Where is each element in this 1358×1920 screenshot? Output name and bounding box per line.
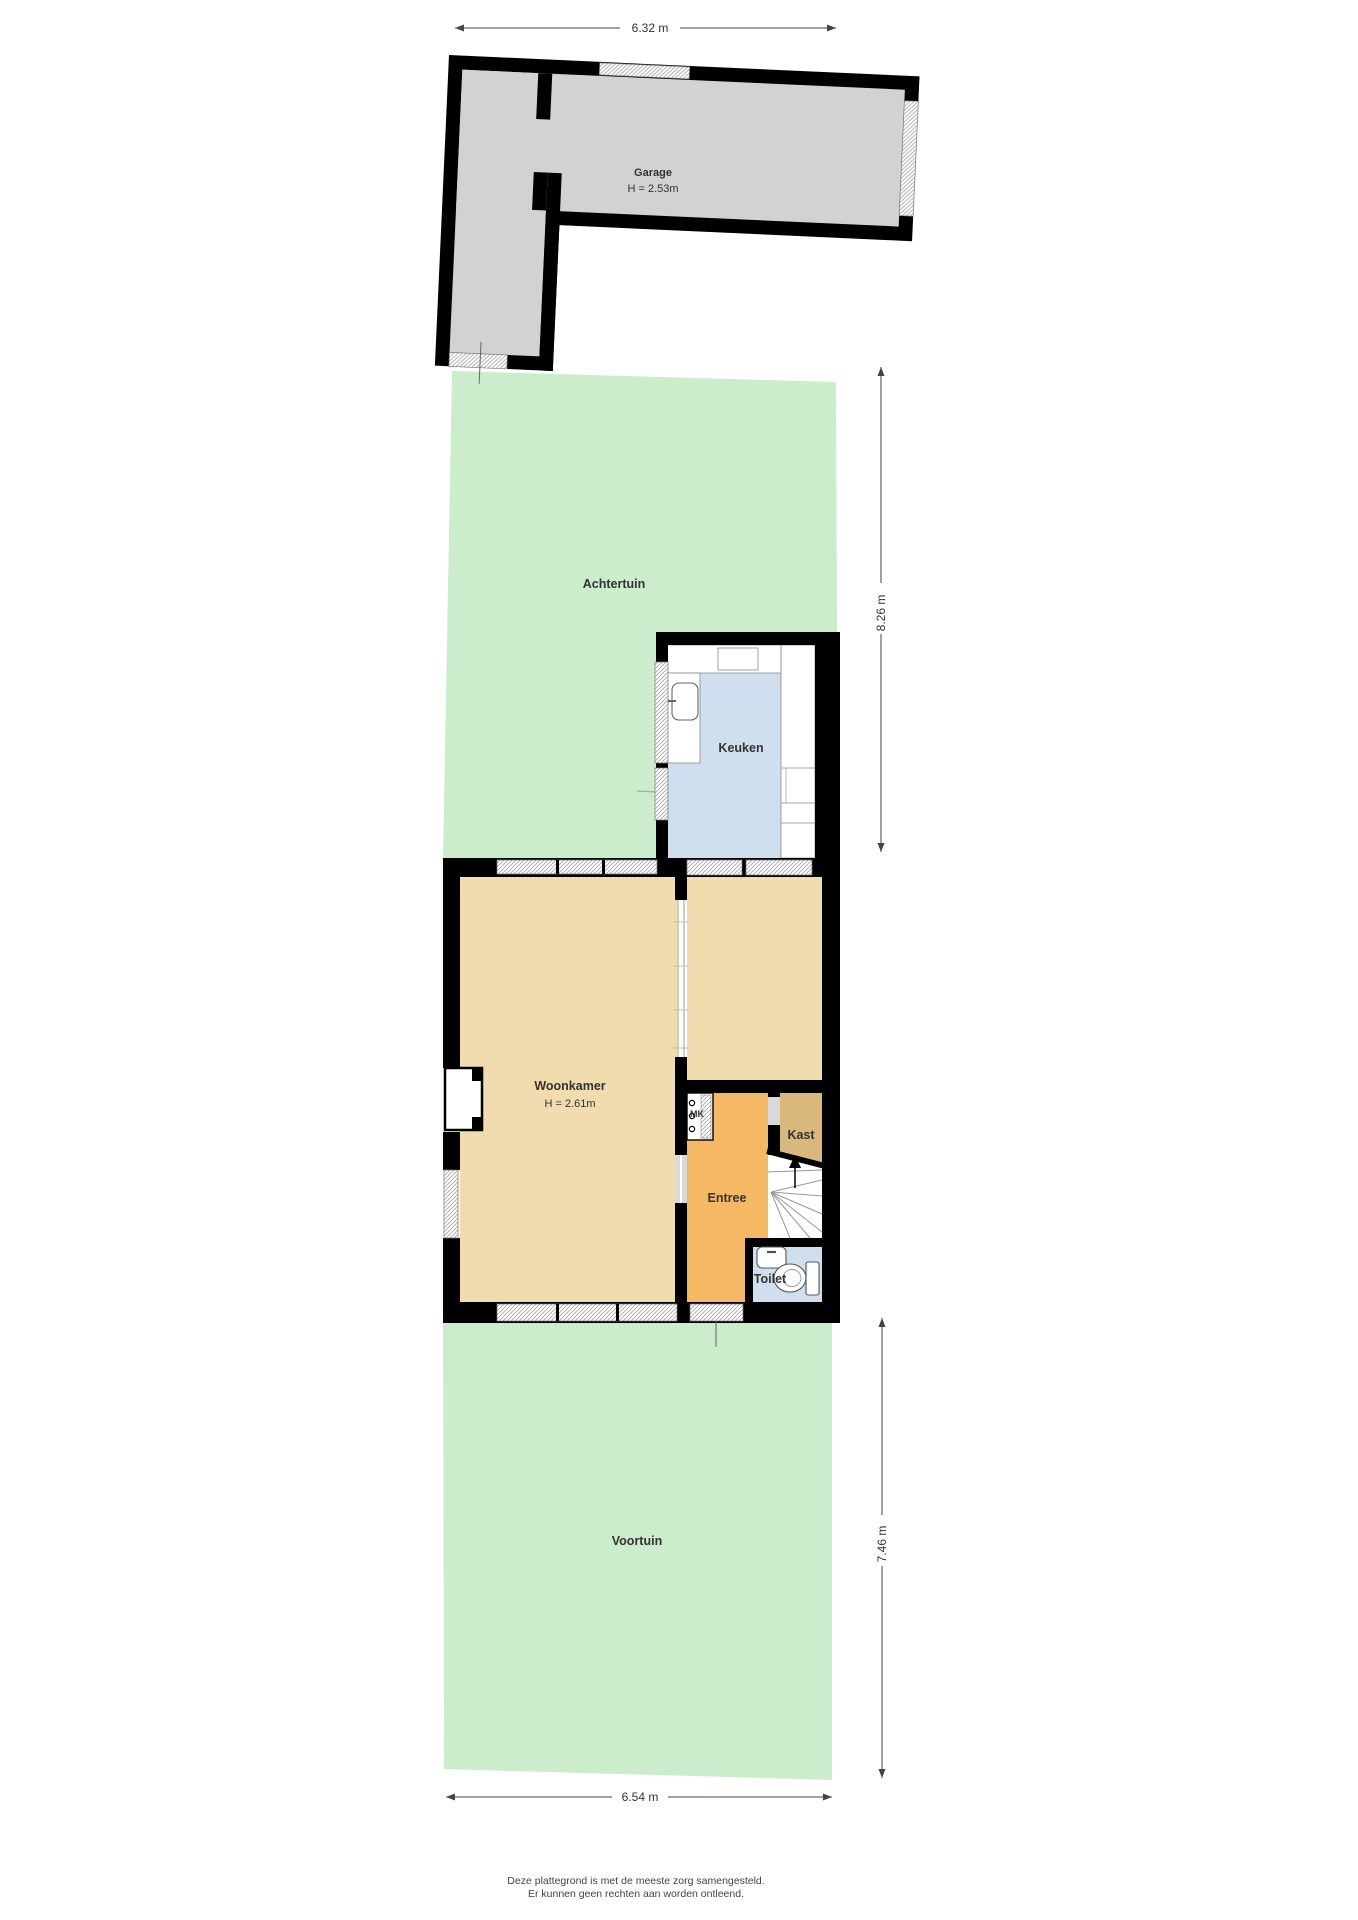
dimension-bottom: 6.54 m [446, 1790, 832, 1804]
dimension-right-upper-label: 8.26 m [874, 595, 888, 632]
achterkamer-floor [687, 877, 822, 1080]
dimension-right-upper: 8.26 m [874, 367, 888, 852]
mk-label: MK [690, 1109, 704, 1119]
dimension-right-lower: 7.46 m [875, 1318, 889, 1778]
keuken-door [746, 860, 812, 875]
voortuin-label: Voortuin [612, 1534, 662, 1548]
garage-height-label: H = 2.53m [627, 183, 678, 195]
entree-label: Entree [708, 1191, 747, 1205]
keuken-window-1 [655, 662, 668, 763]
kast-label: Kast [787, 1128, 815, 1142]
footer-disclaimer: Deze plattegrond is met de meeste zorg s… [507, 1875, 764, 1900]
toilet-label: Toilet [754, 1272, 787, 1286]
woonkamer-side-window [444, 1170, 458, 1238]
keuken-window-2 [655, 768, 668, 820]
keuken-label: Keuken [718, 741, 763, 755]
dimension-right-lower-label: 7.46 m [875, 1526, 889, 1563]
footer-line-2: Er kunnen geen rechten aan worden ontlee… [528, 1888, 744, 1900]
floorplan-drawing: Garage H = 2.53m [0, 0, 1358, 1920]
keuken-serving-window [687, 860, 742, 875]
voortuin-area [443, 1321, 832, 1780]
achtertuin-label: Achtertuin [583, 577, 646, 591]
garage-label: Garage [634, 167, 672, 179]
garage-garden-door [449, 352, 508, 369]
woonkamer-label: Woonkamer [534, 1079, 605, 1093]
footer-line-1: Deze plattegrond is met de meeste zorg s… [507, 1875, 764, 1887]
woonkamer-garden-window [497, 860, 657, 874]
dimension-bottom-label: 6.54 m [622, 1790, 659, 1804]
garage-structure [434, 55, 919, 403]
floorplan-page: Garage H = 2.53m [0, 0, 1358, 1920]
toilet-tank-icon [806, 1262, 819, 1295]
front-door [690, 1304, 743, 1321]
kast-door-opening [768, 1097, 780, 1125]
dimension-top-label: 6.32 m [632, 21, 669, 35]
woonkamer-front-window [497, 1304, 677, 1321]
toilet-sink-icon [757, 1247, 786, 1268]
woonkamer-height-label: H = 2.61m [544, 1098, 595, 1110]
dimension-top: 6.32 m [455, 21, 836, 35]
fireplace [445, 1068, 482, 1130]
